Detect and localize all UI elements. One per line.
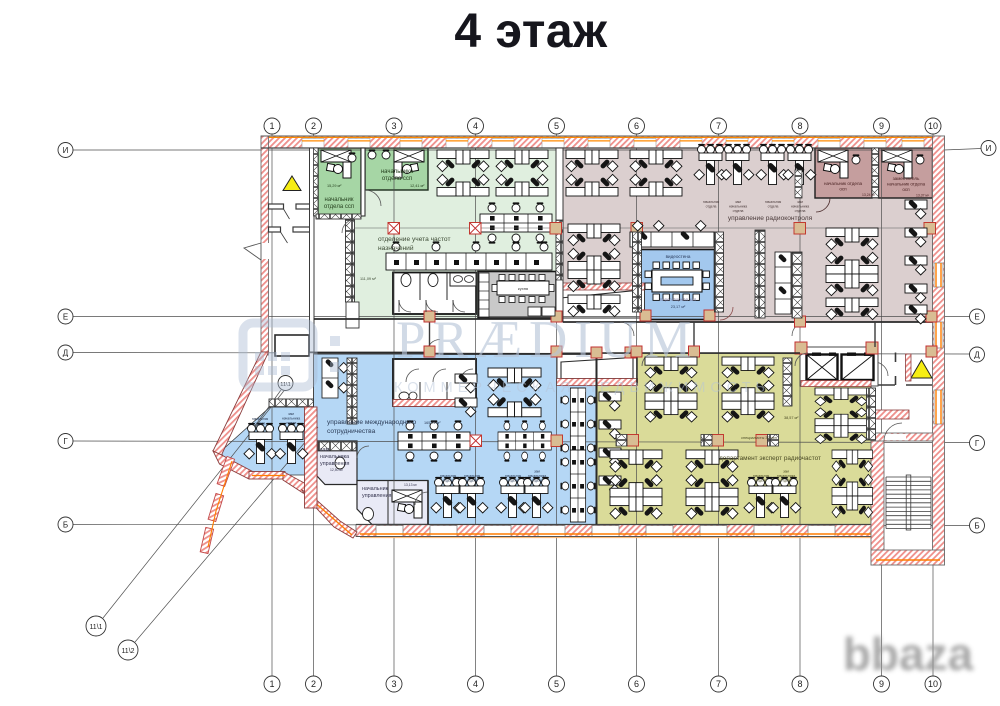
svg-text:отдела: отдела bbox=[768, 205, 779, 209]
svg-text:отделение учета частот: отделение учета частот bbox=[378, 236, 450, 243]
svg-text:начальник: начальник bbox=[252, 417, 269, 421]
svg-text:И: И bbox=[63, 146, 69, 155]
svg-text:начальника: начальника bbox=[320, 454, 349, 460]
svg-text:12,50 м²: 12,50 м² bbox=[330, 468, 344, 472]
svg-text:23,17 м²: 23,17 м² bbox=[671, 305, 686, 309]
svg-text:Б: Б bbox=[63, 521, 68, 530]
svg-text:165,72 м²: 165,72 м² bbox=[424, 421, 441, 425]
svg-text:видеостена: видеостена bbox=[666, 254, 691, 259]
svg-text:начальник: начальник bbox=[362, 486, 389, 492]
svg-text:13,37 м²: 13,37 м² bbox=[916, 194, 930, 198]
svg-text:Е: Е bbox=[974, 313, 979, 322]
svg-text:начальник: начальник bbox=[464, 474, 481, 478]
svg-text:начальник отдела: начальник отдела bbox=[887, 182, 926, 187]
svg-text:начальника: начальника bbox=[729, 205, 747, 209]
svg-text:2: 2 bbox=[311, 121, 316, 131]
svg-text:5: 5 bbox=[554, 679, 559, 689]
svg-text:Б: Б bbox=[974, 522, 979, 531]
svg-text:управление международного: управление международного bbox=[327, 419, 416, 426]
svg-text:начальник: начальник bbox=[703, 200, 720, 204]
svg-text:осп: осп bbox=[902, 187, 910, 192]
svg-text:Е: Е bbox=[63, 313, 68, 322]
svg-text:4 этаж: 4 этаж bbox=[454, 5, 608, 58]
svg-text:отдела: отдела bbox=[756, 479, 767, 483]
svg-text:11\2: 11\2 bbox=[121, 648, 134, 655]
svg-text:11\1: 11\1 bbox=[89, 624, 102, 631]
svg-text:9: 9 bbox=[879, 679, 884, 689]
svg-text:4: 4 bbox=[473, 121, 478, 131]
svg-text:6: 6 bbox=[634, 679, 639, 689]
svg-text:специалисты 32 чел: специалисты 32 чел bbox=[741, 436, 777, 440]
svg-text:начальника: начальника bbox=[777, 474, 795, 478]
svg-text:начальника: начальника bbox=[282, 417, 300, 421]
svg-text:начальник: начальник bbox=[440, 474, 457, 478]
svg-text:7: 7 bbox=[716, 679, 721, 689]
svg-text:38,57 м²: 38,57 м² bbox=[784, 416, 799, 420]
svg-text:управления: управления bbox=[362, 493, 391, 499]
svg-text:отдела: отдела bbox=[532, 479, 543, 483]
svg-text:начальника: начальника bbox=[381, 169, 414, 175]
svg-text:кухня: кухня bbox=[518, 286, 528, 291]
svg-text:отдела: отдела bbox=[706, 205, 717, 209]
svg-text:департамент эксперт радиочаст: департамент эксперт радиочастот bbox=[719, 455, 821, 462]
svg-text:отдела: отдела bbox=[733, 209, 744, 213]
svg-text:начальник отдела: начальник отдела bbox=[824, 181, 863, 186]
svg-text:отдела: отдела bbox=[286, 421, 297, 425]
svg-text:Д: Д bbox=[974, 351, 980, 360]
svg-text:Д: Д bbox=[63, 349, 69, 358]
svg-text:7: 7 bbox=[716, 121, 721, 131]
svg-text:управления: управления bbox=[320, 461, 349, 467]
svg-text:начальник: начальник bbox=[505, 474, 522, 478]
svg-text:2: 2 bbox=[311, 679, 316, 689]
svg-text:4: 4 bbox=[473, 679, 478, 689]
svg-text:10: 10 bbox=[928, 679, 938, 689]
svg-text:PRÆDIUM: PRÆDIUM bbox=[396, 311, 698, 369]
svg-text:Г: Г bbox=[975, 439, 980, 448]
svg-text:зам: зам bbox=[783, 470, 789, 474]
svg-text:сотрудничества: сотрудничества bbox=[327, 428, 376, 435]
svg-text:6: 6 bbox=[634, 121, 639, 131]
svg-text:заместитель: заместитель bbox=[893, 176, 920, 181]
svg-text:отдела: отдела bbox=[443, 479, 454, 483]
svg-text:управление радиоконтроля: управление радиоконтроля bbox=[728, 215, 813, 222]
svg-text:отдела ссп: отдела ссп bbox=[382, 176, 412, 182]
svg-text:переговорная зал: переговорная зал bbox=[660, 297, 697, 302]
svg-text:111,09 м²: 111,09 м² bbox=[360, 277, 377, 281]
svg-text:1: 1 bbox=[269, 121, 274, 131]
svg-text:начальник: начальник bbox=[765, 200, 782, 204]
svg-text:13,13 м²: 13,13 м² bbox=[404, 483, 418, 487]
svg-text:зам: зам bbox=[320, 447, 329, 453]
svg-text:15,29 м²: 15,29 м² bbox=[327, 184, 342, 188]
svg-text:отдела ссп: отдела ссп bbox=[324, 204, 354, 210]
svg-text:5: 5 bbox=[554, 121, 559, 131]
svg-text:осп: осп bbox=[839, 187, 847, 192]
svg-text:КОММЕРЧЕСКАЯ НЕДВИЖИМОСТЬ: КОММЕРЧЕСКАЯ НЕДВИЖИМОСТЬ bbox=[394, 380, 770, 396]
svg-text:10: 10 bbox=[928, 121, 938, 131]
svg-text:13,24 м²: 13,24 м² bbox=[862, 193, 876, 197]
svg-text:отдела: отдела bbox=[508, 479, 519, 483]
svg-text:Г: Г bbox=[63, 437, 68, 446]
svg-text:отдела: отдела bbox=[255, 422, 266, 426]
svg-text:зам: зам bbox=[797, 200, 803, 204]
svg-text:3: 3 bbox=[391, 679, 396, 689]
svg-text:8: 8 bbox=[797, 679, 802, 689]
svg-text:12,41 м²: 12,41 м² bbox=[410, 184, 425, 188]
svg-text:bbaza: bbaza bbox=[843, 628, 974, 680]
svg-text:зам: зам bbox=[288, 412, 294, 416]
svg-text:назначений: назначений bbox=[378, 244, 414, 252]
svg-text:8: 8 bbox=[797, 121, 802, 131]
svg-text:отдела: отдела bbox=[795, 209, 806, 213]
svg-text:зам: зам bbox=[534, 470, 540, 474]
svg-text:отдела: отдела bbox=[467, 479, 478, 483]
svg-text:начальника: начальника bbox=[791, 205, 809, 209]
svg-text:начальник: начальник bbox=[325, 197, 354, 203]
svg-text:И: И bbox=[986, 144, 992, 153]
svg-text:начальника: начальника bbox=[528, 474, 546, 478]
svg-text:отдела: отдела bbox=[781, 479, 792, 483]
svg-text:3: 3 bbox=[391, 121, 396, 131]
svg-text:9: 9 bbox=[879, 121, 884, 131]
svg-text:зам: зам bbox=[735, 200, 741, 204]
svg-text:начальник: начальник bbox=[753, 474, 770, 478]
svg-text:1: 1 bbox=[269, 679, 274, 689]
